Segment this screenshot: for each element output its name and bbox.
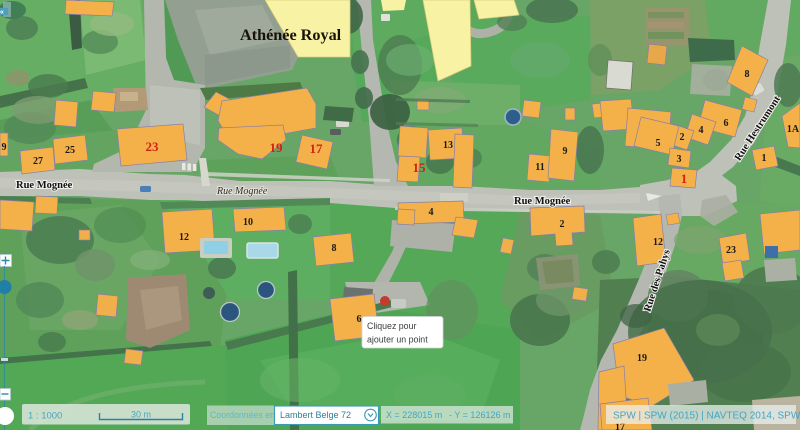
svg-text:1A: 1A [787,124,800,135]
svg-text:6: 6 [724,118,729,129]
svg-text:8: 8 [745,69,750,80]
svg-text:12: 12 [179,232,189,243]
svg-text:9: 9 [563,146,568,157]
svg-text:- Y = 126126 m: - Y = 126126 m [449,410,510,420]
svg-text:23: 23 [146,139,160,154]
svg-text:X = 228015 m: X = 228015 m [386,410,442,420]
svg-text:23: 23 [726,245,736,256]
svg-text:13: 13 [443,140,453,151]
svg-text:Rue Mognée: Rue Mognée [16,180,73,191]
svg-text:11: 11 [535,162,544,173]
svg-text:5: 5 [656,138,661,149]
svg-text:30 m: 30 m [131,410,151,420]
svg-text:6: 6 [357,314,362,325]
svg-text:Cliquez pour: Cliquez pour [367,321,416,331]
svg-text:19: 19 [270,140,284,155]
svg-text:10: 10 [243,217,253,228]
svg-text:27: 27 [33,156,43,167]
svg-text:19: 19 [637,353,647,364]
svg-text:15: 15 [413,160,427,175]
svg-text:Athénée Royal: Athénée Royal [240,26,342,44]
svg-text:9: 9 [2,142,7,153]
svg-text:Lambert Belge 72: Lambert Belge 72 [280,410,351,420]
svg-text:25: 25 [65,145,75,156]
svg-text:4: 4 [429,207,434,218]
svg-text:4: 4 [699,125,704,136]
svg-text:12: 12 [653,237,663,248]
svg-text:ajouter un point: ajouter un point [367,335,428,345]
svg-text:1 : 1000: 1 : 1000 [28,411,62,422]
svg-text:SPW | SPW (2015) | NAVTEQ 2014: SPW | SPW (2015) | NAVTEQ 2014, SPW [613,411,800,422]
svg-text:«: « [0,9,4,16]
svg-text:3: 3 [677,154,682,165]
svg-text:2: 2 [680,132,685,143]
svg-text:1: 1 [762,153,767,164]
svg-text:Rue Mognée: Rue Mognée [514,196,571,207]
svg-text:2: 2 [560,219,565,230]
svg-text:1: 1 [681,171,688,186]
svg-text:8: 8 [332,243,337,254]
svg-text:Rue Mognée: Rue Mognée [216,186,268,197]
svg-text:17: 17 [310,141,324,156]
svg-text:Coordonnées en: Coordonnées en [210,410,275,420]
